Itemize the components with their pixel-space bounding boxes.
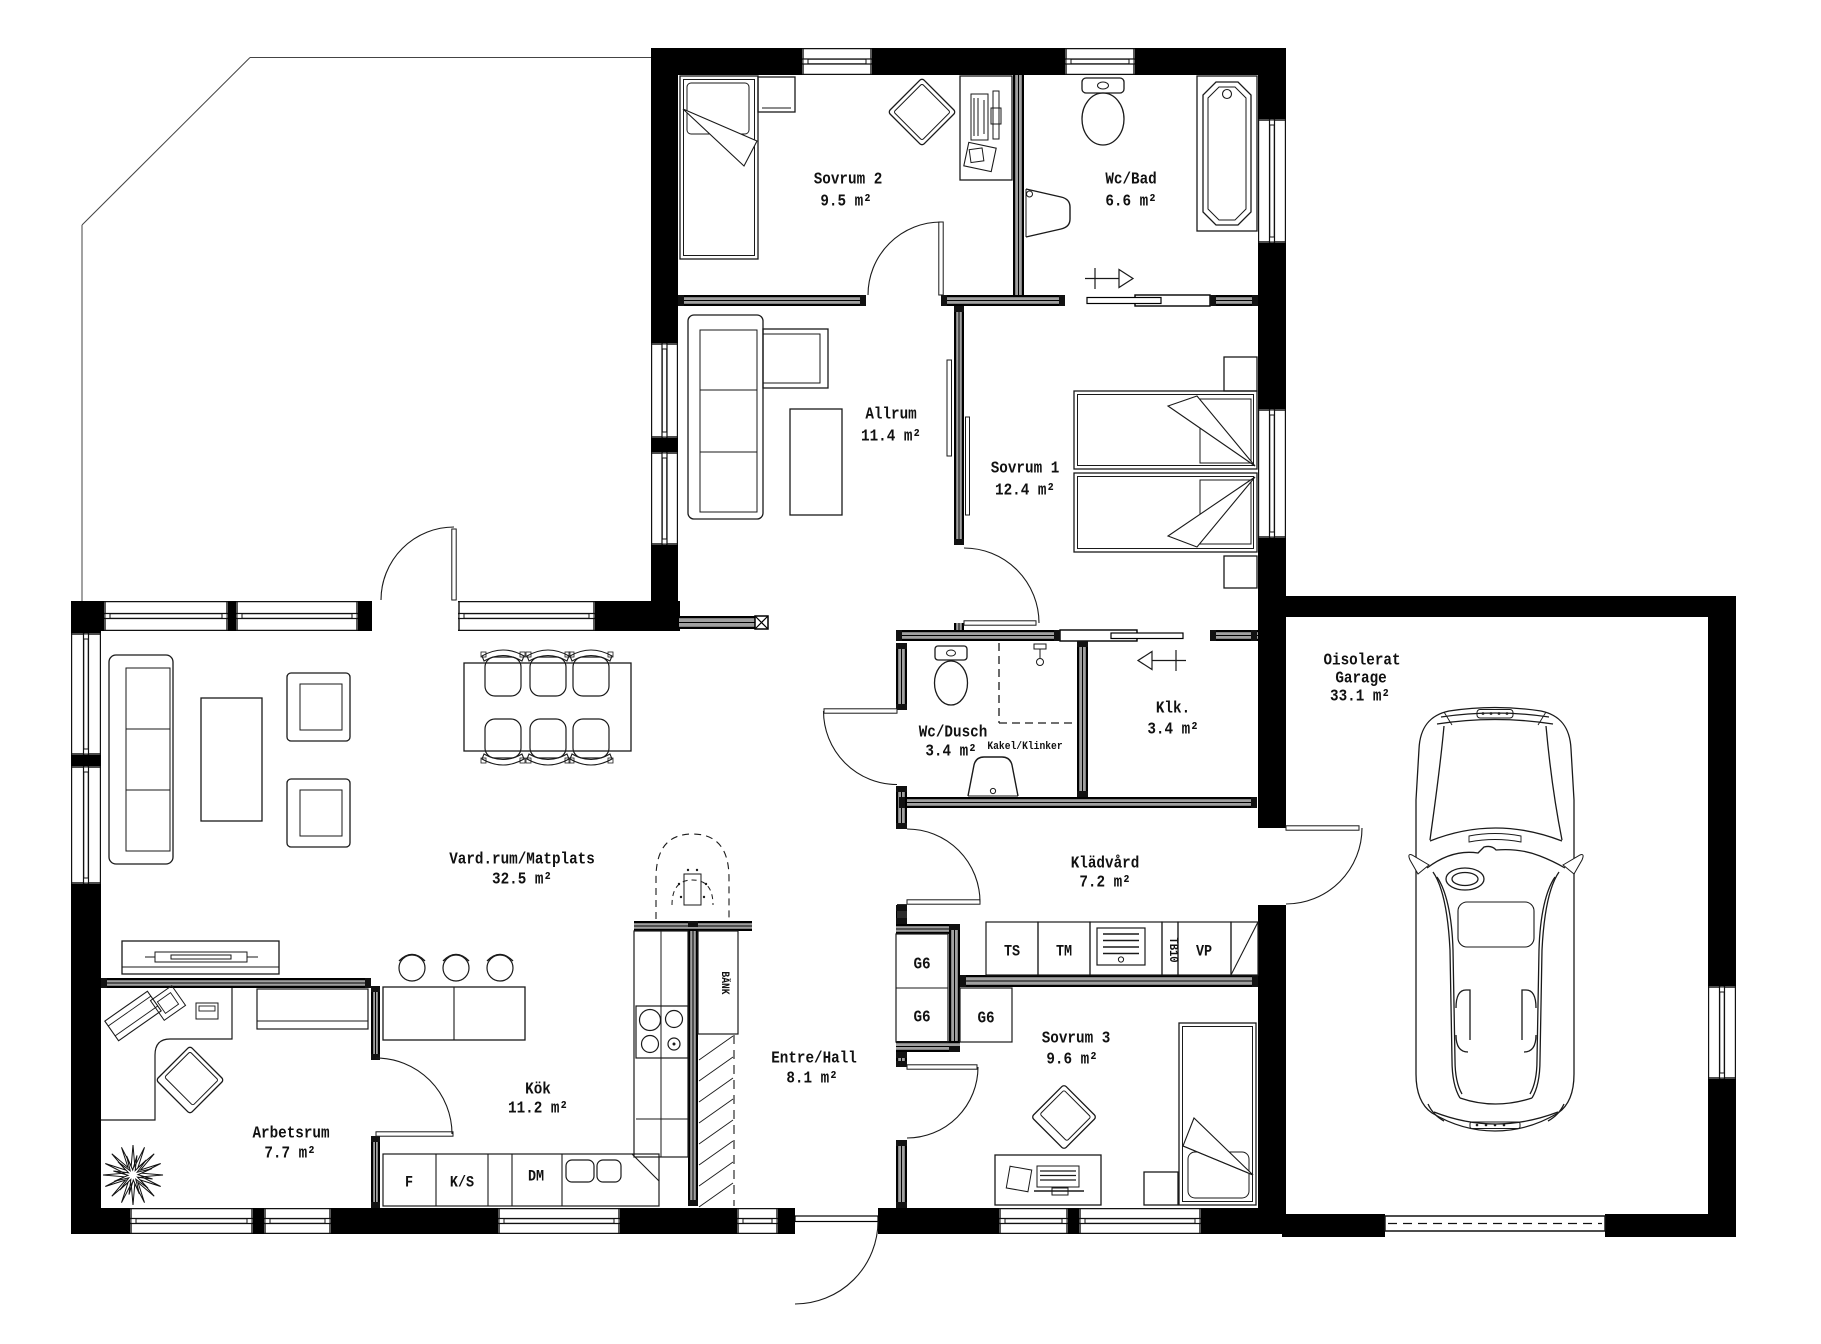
svg-text:3.4 m²: 3.4 m² [1147, 720, 1198, 739]
svg-text:Sovrum 2: Sovrum 2 [814, 170, 883, 189]
svg-text:Kök: Kök [525, 1080, 551, 1099]
svg-text:6.6 m²: 6.6 m² [1105, 192, 1156, 211]
svg-text:Klädvård: Klädvård [1071, 854, 1140, 873]
svg-text:TM: TM [1056, 943, 1072, 960]
svg-text:K/S: K/S [450, 1174, 474, 1191]
svg-text:G6: G6 [977, 1009, 994, 1028]
svg-text:3.4 m²: 3.4 m² [925, 742, 976, 761]
svg-text:G6: G6 [913, 955, 930, 974]
svg-text:12.4 m²: 12.4 m² [995, 481, 1055, 500]
svg-text:Klk.: Klk. [1156, 699, 1190, 718]
svg-text:Oisolerat: Oisolerat [1323, 651, 1400, 670]
svg-text:Wc/Dusch: Wc/Dusch [919, 723, 988, 742]
svg-text:9.5 m²: 9.5 m² [820, 192, 871, 211]
svg-text:Entre/Hall: Entre/Hall [771, 1049, 857, 1068]
svg-text:9.6 m²: 9.6 m² [1046, 1050, 1097, 1069]
svg-text:Arbetsrum: Arbetsrum [252, 1124, 329, 1143]
svg-text:Allrum: Allrum [865, 405, 916, 424]
svg-text:BÄNK: BÄNK [718, 971, 732, 995]
svg-text:F: F [405, 1174, 413, 1191]
svg-text:Wc/Bad: Wc/Bad [1105, 170, 1156, 189]
svg-text:Sovrum 3: Sovrum 3 [1042, 1029, 1111, 1048]
svg-text:33.1 m²: 33.1 m² [1330, 687, 1390, 706]
svg-text:11.2 m²: 11.2 m² [508, 1099, 568, 1118]
svg-text:Vard.rum/Matplats: Vard.rum/Matplats [449, 850, 595, 869]
svg-text:7.2 m²: 7.2 m² [1079, 873, 1130, 892]
svg-text:VP: VP [1196, 943, 1212, 960]
svg-text:TB10: TB10 [1166, 937, 1180, 962]
svg-text:7.7 m²: 7.7 m² [264, 1144, 315, 1163]
svg-text:Sovrum 1: Sovrum 1 [991, 459, 1060, 478]
svg-text:11.4 m²: 11.4 m² [861, 427, 921, 446]
svg-text:8.1 m²: 8.1 m² [786, 1069, 837, 1088]
svg-text:Garage: Garage [1335, 669, 1386, 688]
svg-text:Kakel/Klinker: Kakel/Klinker [987, 740, 1062, 753]
svg-text:DM: DM [528, 1168, 544, 1185]
svg-text:32.5 m²: 32.5 m² [492, 870, 552, 889]
svg-text:G6: G6 [913, 1008, 930, 1027]
svg-text:TS: TS [1004, 943, 1020, 960]
